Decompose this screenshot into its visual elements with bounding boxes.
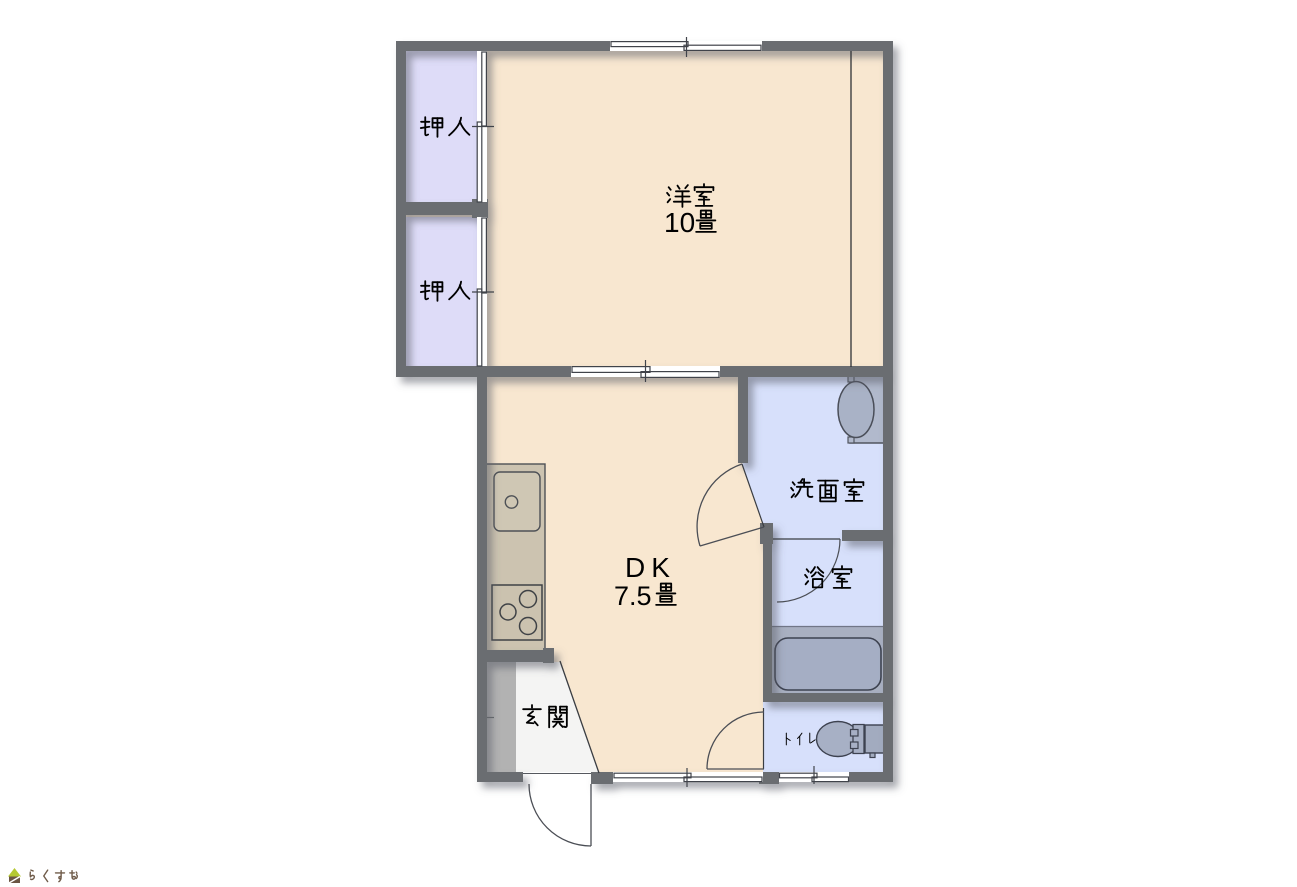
svg-text:DK: DK (625, 552, 676, 583)
svg-text:10: 10 (664, 207, 695, 238)
svg-text:7.5: 7.5 (614, 581, 652, 611)
